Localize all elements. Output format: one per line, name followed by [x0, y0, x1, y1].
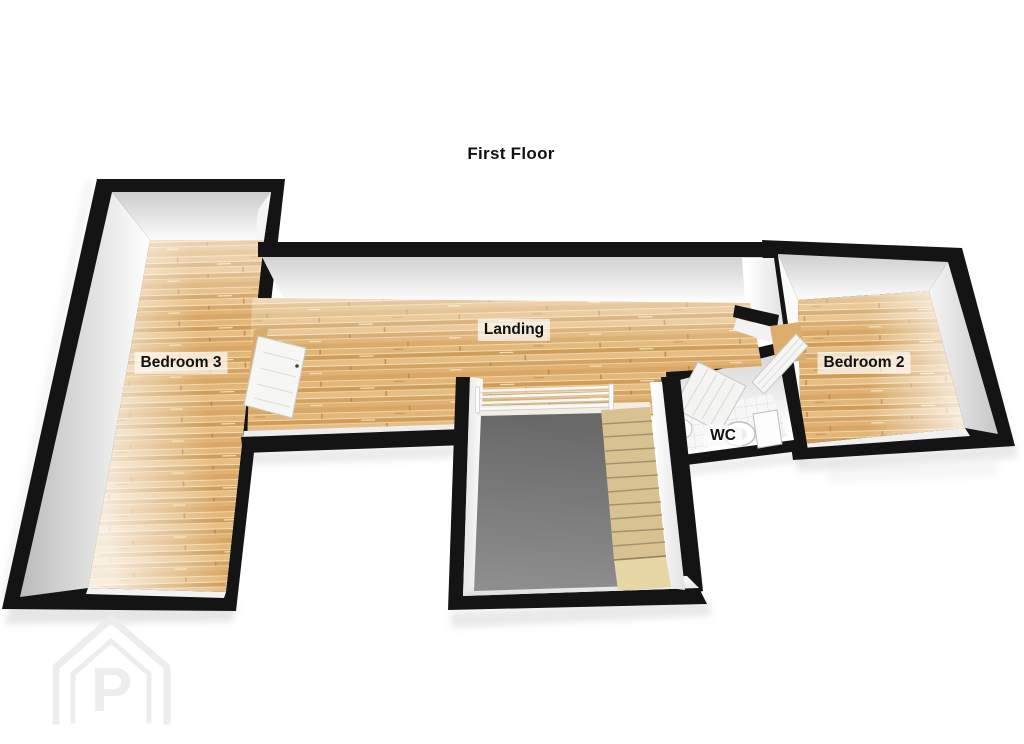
room-label-wc: WC	[704, 425, 742, 447]
room-label-landing: Landing	[478, 319, 550, 341]
watermark-letter: P	[91, 656, 132, 725]
room-label-bedroom2: Bedroom 2	[818, 352, 911, 374]
house-logo-watermark: P	[56, 619, 167, 725]
stairwell	[448, 377, 707, 610]
landing-top-wall	[258, 242, 766, 257]
floor-title: First Floor	[467, 144, 554, 164]
room-label-bedroom3: Bedroom 3	[135, 352, 228, 374]
floorplan-page: P First Floor Bedroom 3 Landing WC Bedro…	[0, 0, 1024, 744]
